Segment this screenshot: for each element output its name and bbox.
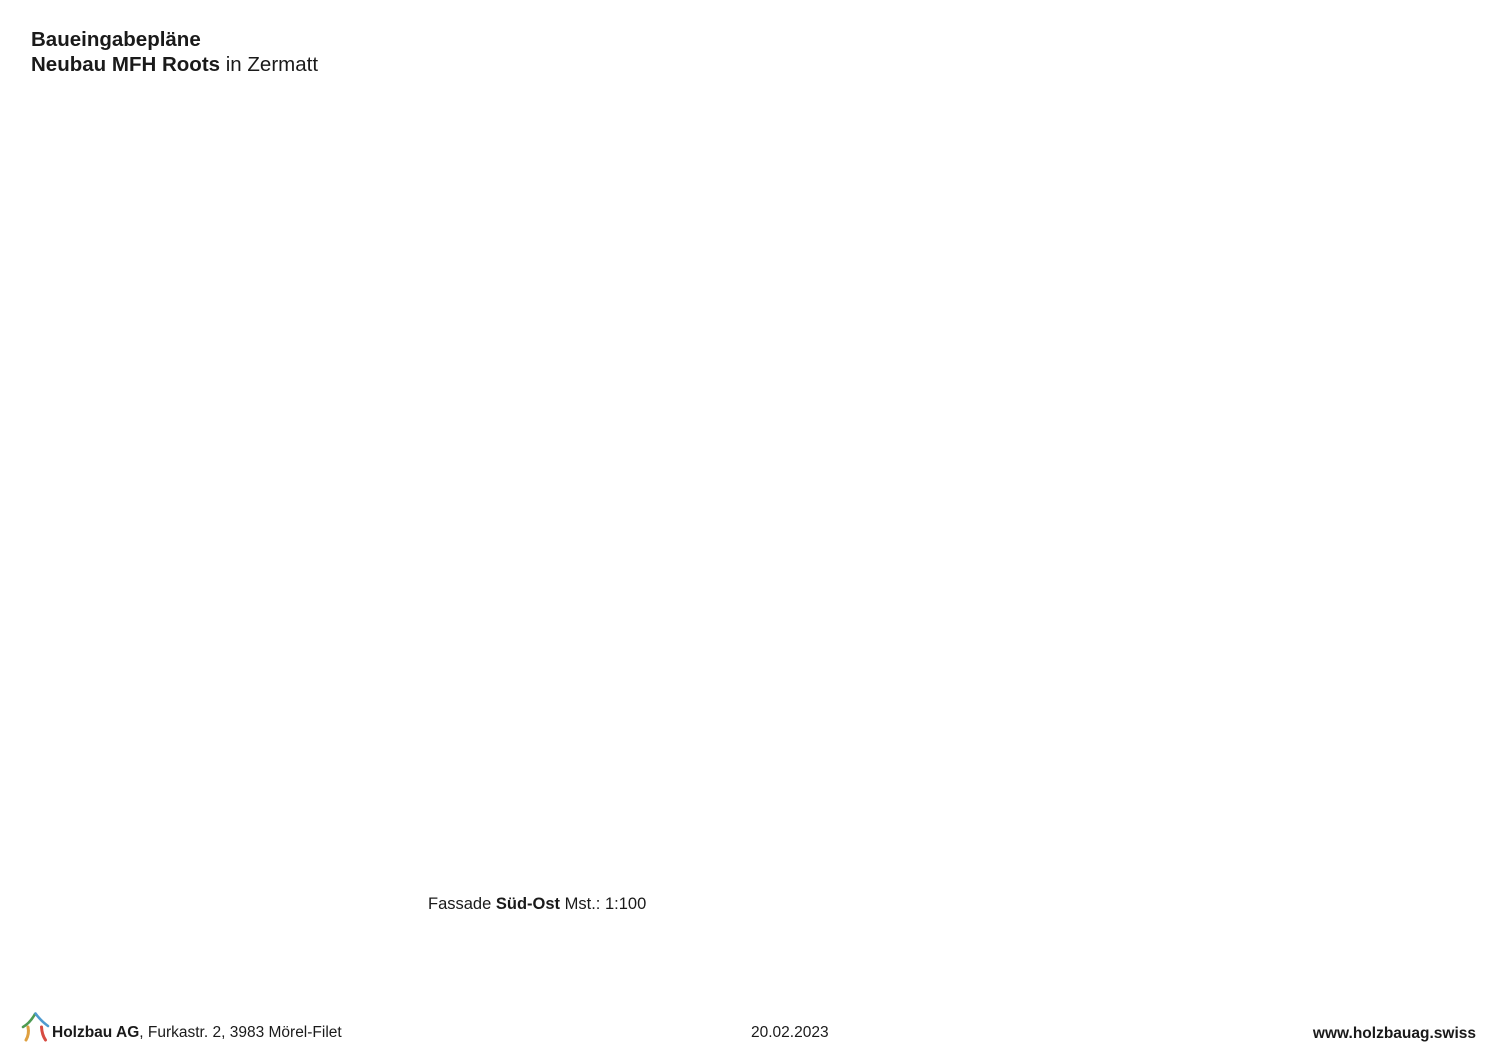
svg-text:Baueingabepläne: Baueingabepläne — [31, 28, 201, 51]
svg-text:Holzbau AG, Furkastr. 2, 3983: Holzbau AG, Furkastr. 2, 3983 Mörel-File… — [52, 1024, 342, 1041]
svg-text:Fassade Süd-Ost Mst.: 1:100: Fassade Süd-Ost Mst.: 1:100 — [428, 895, 646, 913]
svg-text:www.holzbauag.swiss: www.holzbauag.swiss — [1312, 1025, 1476, 1042]
svg-text:20.02.2023: 20.02.2023 — [751, 1024, 829, 1041]
svg-text:Neubau MFH Roots in Zermatt: Neubau MFH Roots in Zermatt — [31, 53, 318, 76]
